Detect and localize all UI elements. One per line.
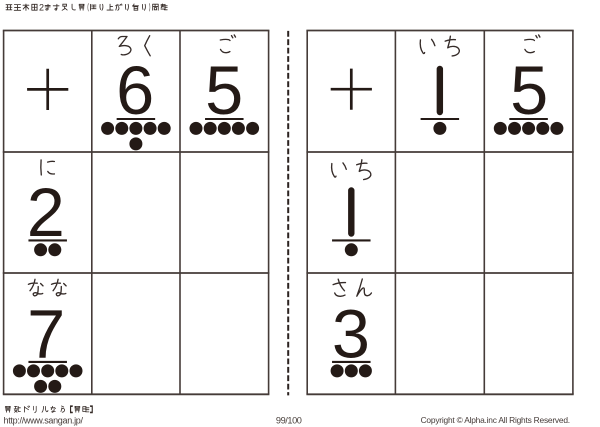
svg-text:5: 5 xyxy=(510,52,548,129)
svg-text:6: 6 xyxy=(116,52,154,129)
svg-text:99/100: 99/100 xyxy=(276,415,302,425)
svg-text:2: 2 xyxy=(27,174,65,251)
svg-text:2: 2 xyxy=(39,3,44,13)
svg-text:http://www.sangan.jp/: http://www.sangan.jp/ xyxy=(4,415,84,425)
svg-text:5: 5 xyxy=(205,52,243,129)
svg-text:Copyright © Alpha.inc All Righ: Copyright © Alpha.inc All Rights Reserve… xyxy=(421,415,570,425)
